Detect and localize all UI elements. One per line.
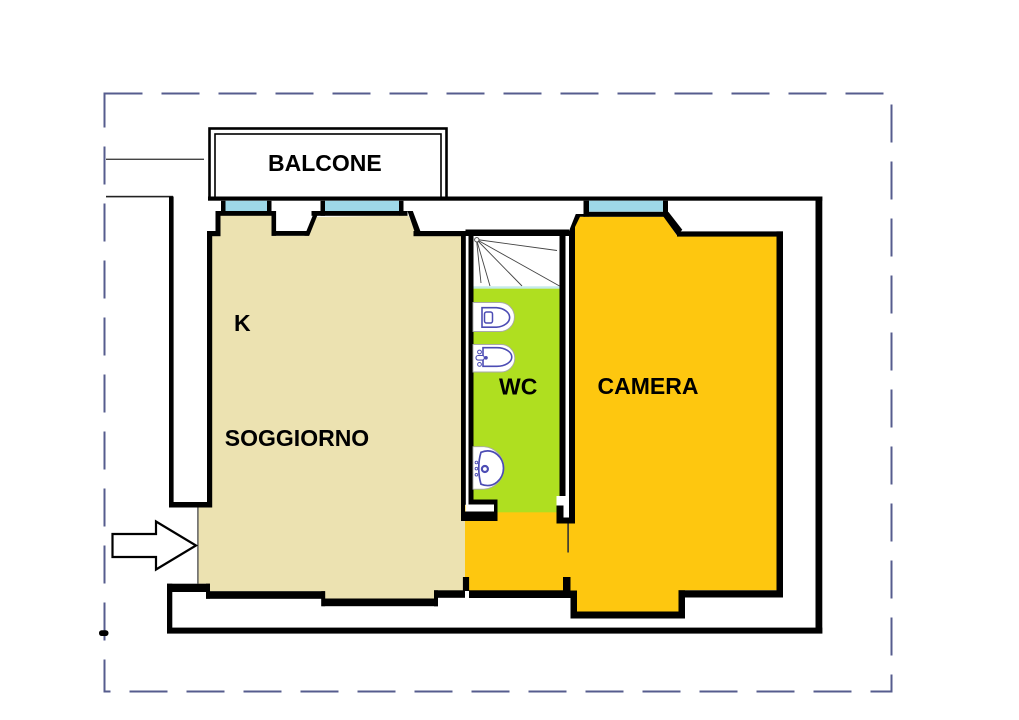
svg-text:SOGGIORNO: SOGGIORNO [225,425,369,451]
svg-text:BALCONE: BALCONE [268,150,382,176]
svg-text:K: K [234,310,251,336]
svg-text:WC: WC [499,373,537,399]
svg-text:CAMERA: CAMERA [598,373,699,399]
